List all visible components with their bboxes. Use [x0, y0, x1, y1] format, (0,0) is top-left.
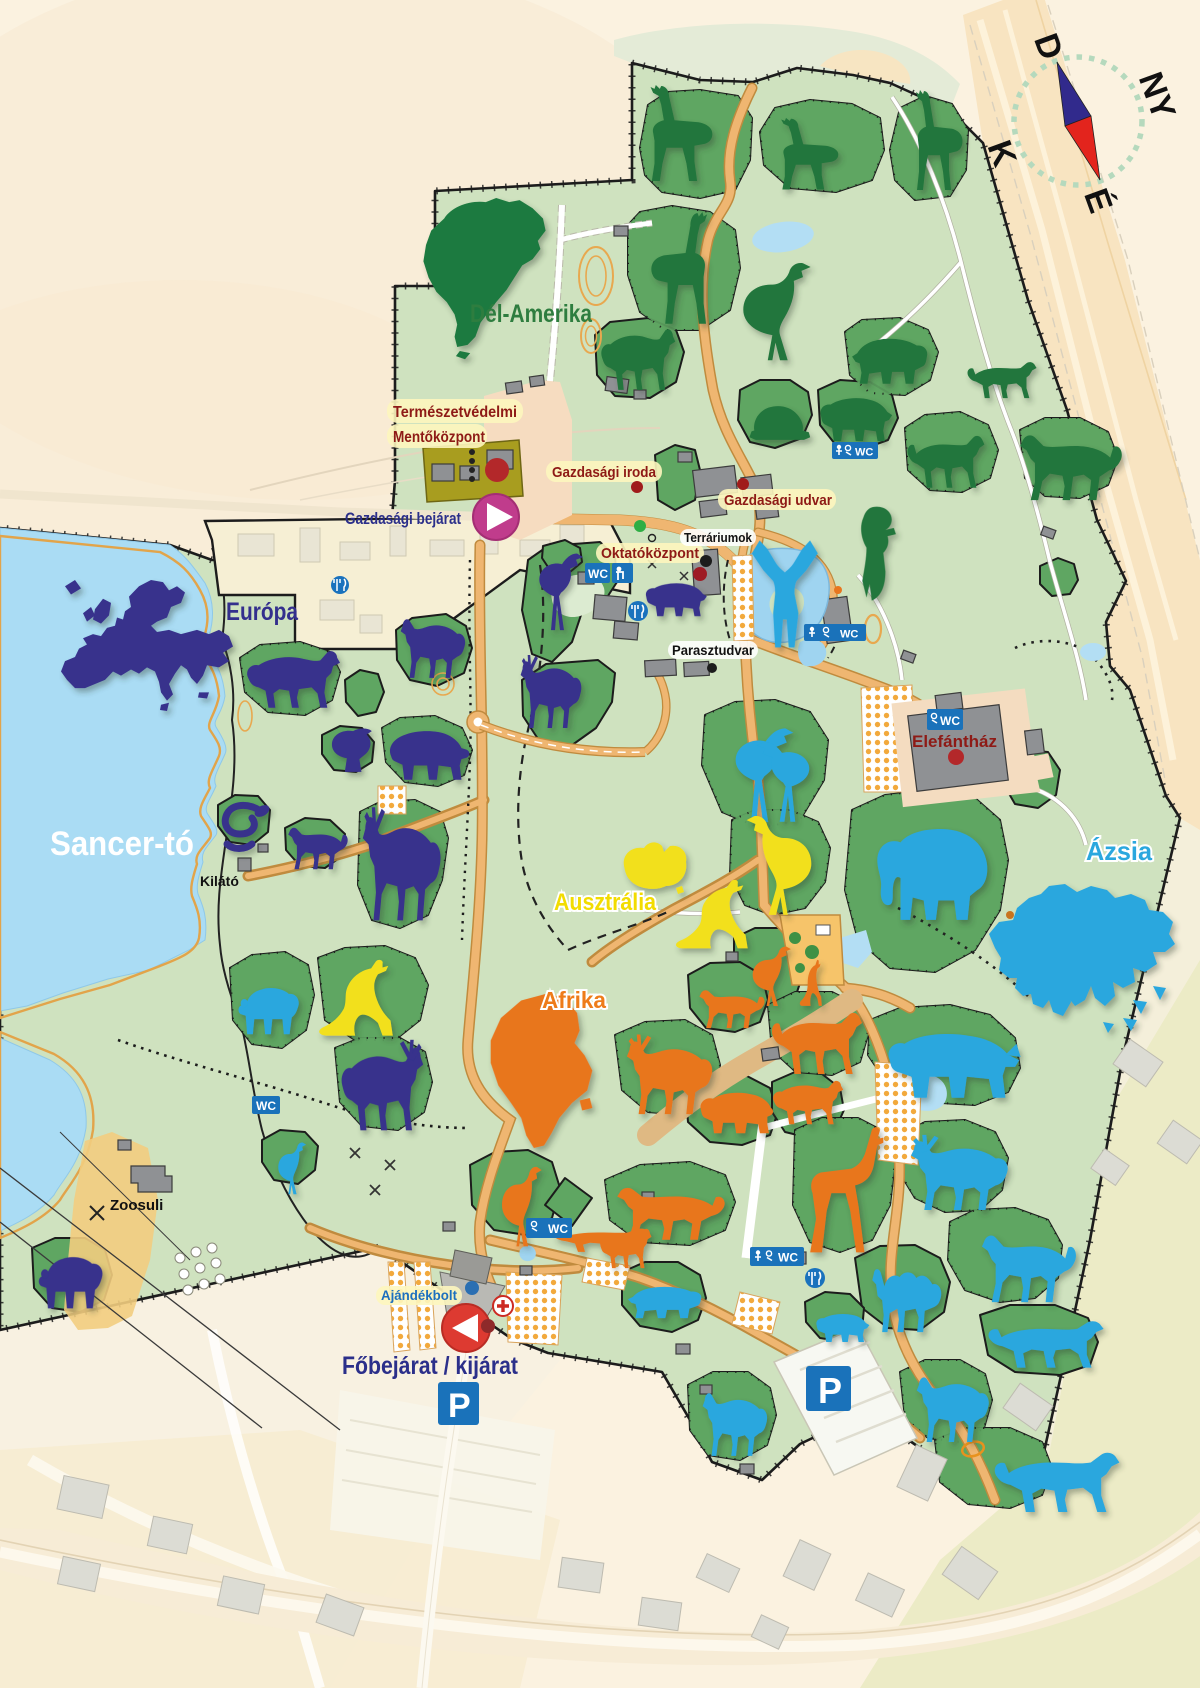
svg-text:Parasztudvar: Parasztudvar	[672, 643, 755, 658]
svg-text:Ajándékbolt: Ajándékbolt	[381, 1288, 457, 1303]
svg-text:Gazdasági bejárat: Gazdasági bejárat	[345, 509, 461, 528]
svg-text:Gazdasági iroda: Gazdasági iroda	[552, 464, 657, 481]
svg-text:Főbejárat / kijárat: Főbejárat / kijárat	[342, 1352, 519, 1380]
svg-text:Ázsia: Ázsia	[1086, 836, 1153, 866]
svg-text:Kilátó: Kilátó	[200, 873, 239, 889]
svg-text:WC: WC	[840, 629, 858, 641]
svg-text:P: P	[448, 1387, 471, 1425]
svg-text:Ausztrália: Ausztrália	[554, 889, 657, 916]
svg-text:WC: WC	[256, 1099, 276, 1113]
svg-text:Dél-Amerika: Dél-Amerika	[470, 300, 593, 328]
svg-text:Zoosuli: Zoosuli	[110, 1197, 163, 1214]
svg-text:Sancer-tó: Sancer-tó	[50, 825, 194, 863]
svg-text:Európa: Európa	[226, 598, 299, 626]
svg-text:WC: WC	[588, 567, 608, 581]
svg-text:Mentőközpont: Mentőközpont	[393, 429, 486, 446]
svg-text:Terráriumok: Terráriumok	[684, 531, 752, 545]
svg-text:WC: WC	[778, 1251, 798, 1265]
svg-text:WC: WC	[548, 1222, 568, 1236]
svg-text:Elefántház: Elefántház	[912, 732, 997, 751]
svg-text:WC: WC	[855, 447, 873, 459]
svg-text:WC: WC	[940, 714, 960, 728]
svg-text:Oktatóközpont: Oktatóközpont	[601, 545, 699, 562]
svg-text:Gazdasági udvar: Gazdasági udvar	[724, 492, 832, 509]
svg-text:P: P	[818, 1370, 842, 1411]
svg-text:Természetvédelmi: Természetvédelmi	[393, 404, 517, 421]
svg-text:Afrika: Afrika	[542, 987, 606, 1013]
